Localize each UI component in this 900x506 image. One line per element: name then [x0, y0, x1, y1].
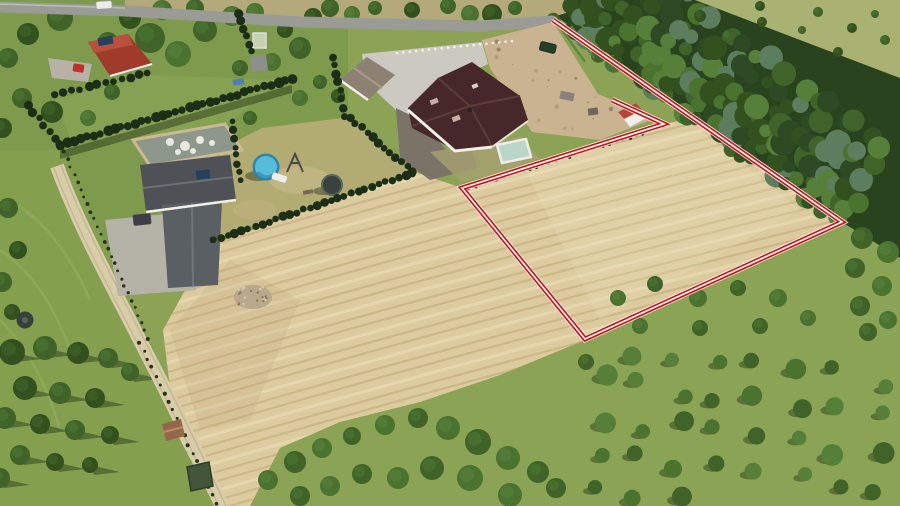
aerial-photo — [0, 0, 900, 506]
parked-car — [133, 213, 152, 226]
white-car — [96, 0, 113, 9]
pergola — [253, 33, 266, 48]
garden-shed — [250, 55, 268, 72]
garden-patch — [187, 462, 213, 491]
aerial-photo-canvas — [0, 0, 900, 506]
tractor — [72, 63, 84, 72]
